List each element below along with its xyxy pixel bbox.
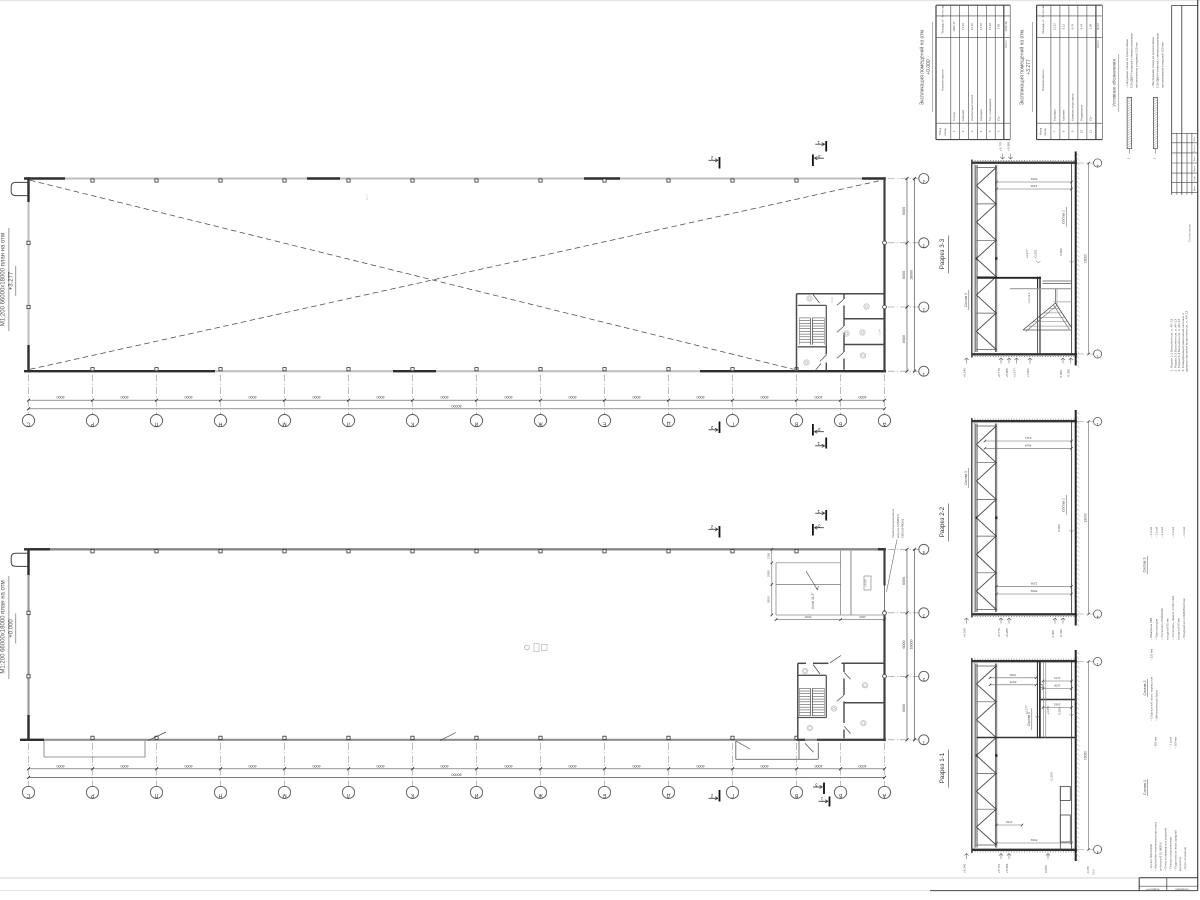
svg-text:4: 4 <box>1097 163 1099 167</box>
svg-text:6000: 6000 <box>633 395 641 399</box>
svg-text:50,3: 50,3 <box>1092 869 1096 875</box>
svg-text:2: 2 <box>961 130 965 132</box>
svg-text:2500х3480(h): 2500х3480(h) <box>901 519 905 538</box>
svg-text:4: 4 <box>1097 614 1099 618</box>
svg-text:6000: 6000 <box>697 395 705 399</box>
svg-text:-0.350: -0.350 <box>1067 369 1071 378</box>
svg-text:Л: Л <box>347 792 350 798</box>
svg-text:Итого: Итого <box>1004 40 1008 48</box>
svg-text:Разрез 2-2: Разрез 2-2 <box>939 506 946 537</box>
svg-text:– Топпинг REFLOOR: – Топпинг REFLOOR <box>1149 844 1153 871</box>
svg-text:6000: 6000 <box>57 764 65 768</box>
svg-text:+3.051: +3.051 <box>1046 705 1050 715</box>
svg-text:ворота АЛЮТЕХ: ворота АЛЮТЕХ <box>896 514 900 538</box>
svg-text:2298: 2298 <box>1030 581 1037 585</box>
svg-text:Состав 3: Состав 3 <box>964 293 968 307</box>
svg-text:2000: 2000 <box>767 570 771 577</box>
svg-text:Сл-3: Сл-3 <box>830 297 834 303</box>
svg-text:Итого: Итого <box>1096 40 1100 48</box>
svg-text:6000: 6000 <box>185 764 193 768</box>
svg-text:6000: 6000 <box>441 395 449 399</box>
svg-text:1: 1 <box>1097 662 1099 666</box>
svg-text:Состав 3: Состав 3 <box>1142 558 1146 573</box>
svg-text:+9.340: +9.340 <box>962 368 966 378</box>
svg-text:– 200 мм: – 200 мм <box>1173 737 1177 749</box>
svg-text:– 1 слой: – 1 слой <box>1171 527 1175 538</box>
svg-text:6000: 6000 <box>57 395 65 399</box>
svg-text:1: 1 <box>952 130 956 132</box>
svg-text:Лист: Лист <box>1194 157 1196 162</box>
svg-text:Дата: Дата <box>1194 185 1196 191</box>
svg-text:12,52: 12,52 <box>1052 23 1056 30</box>
svg-text:8,74: 8,74 <box>1070 23 1074 29</box>
svg-text:Лестничная клетка: Лестничная клетка <box>970 94 974 121</box>
svg-text:18000: 18000 <box>909 270 913 280</box>
svg-text:– Наружные стены из трехслойны: – Наружные стены из трехслойных <box>1125 39 1129 88</box>
svg-text:СЭНДВИЧ-панелей с минераловатн: СЭНДВИЧ-панелей с минераловатным <box>1130 33 1134 88</box>
svg-text:Кабинет: Кабинет <box>961 109 965 121</box>
svg-text:+3.277: +3.277 <box>1012 368 1016 378</box>
svg-text:6: 6 <box>997 130 1001 132</box>
svg-text:6575: 6575 <box>1009 680 1016 684</box>
svg-text:12,52: 12,52 <box>979 23 983 30</box>
svg-text:8569: 8569 <box>1030 589 1037 593</box>
svg-text:Экспликация помещений на отм.: Экспликация помещений на отм. <box>919 29 926 106</box>
svg-text:Состав 2: Состав 2 <box>1143 681 1147 696</box>
svg-text:+3.277: +3.277 <box>1025 705 1029 715</box>
svg-text:8,74: 8,74 <box>1079 23 1083 29</box>
svg-text:4000: 4000 <box>859 395 867 399</box>
svg-text:М1:200 66000х18000 план на отм: М1:200 66000х18000 план на отм <box>1 233 7 326</box>
svg-text:+3.277: +3.277 <box>1025 249 1029 259</box>
svg-text:1436,39: 1436,39 <box>1004 21 1008 32</box>
svg-text:Кол-во люд.: Кол-во люд. <box>942 4 944 17</box>
svg-text:+9.340: +9.340 <box>962 628 966 638</box>
svg-text:– Сетка из арматурных стержней: – Сетка из арматурных стержней <box>1164 827 1168 871</box>
svg-text:6000: 6000 <box>185 395 193 399</box>
svg-text:Герметизированные: Герметизированные <box>891 509 895 538</box>
svg-text:1080,14: 1080,14 <box>952 21 956 32</box>
svg-text:40,62: 40,62 <box>1096 23 1100 30</box>
svg-text:6000: 6000 <box>804 615 811 619</box>
svg-text:– Железобетонная монолитная пл: – Железобетонная монолитная плита <box>1154 822 1158 871</box>
svg-text:6000: 6000 <box>902 641 906 649</box>
svg-text:дверных проемов выполнена см.: дверных проемов выполнена см. л. АР-13 <box>1185 311 1189 372</box>
svg-text:+5.770: +5.770 <box>997 863 1001 873</box>
svg-text:6000: 6000 <box>121 764 129 768</box>
svg-text:Состав 1: Состав 1 <box>1143 780 1147 795</box>
svg-text:Кол-во люд.: Кол-во люд. <box>1043 4 1045 17</box>
svg-text:10: 10 <box>1079 129 1083 133</box>
svg-text:0.000: 0.000 <box>1044 865 1048 873</box>
svg-text:М: М <box>282 420 286 426</box>
svg-text:Формат А4: Формат А4 <box>1146 887 1160 891</box>
svg-text:4000: 4000 <box>859 764 867 768</box>
svg-text:18000: 18000 <box>1083 513 1087 522</box>
svg-text:3: 3 <box>815 782 818 787</box>
svg-text:толщиной 50 мм: толщиной 50 мм <box>1165 619 1169 640</box>
svg-text:+5.770: +5.770 <box>997 628 1001 638</box>
svg-text:– 2 слоя: – 2 слоя <box>1168 737 1172 748</box>
svg-text:Л: Л <box>347 420 350 426</box>
svg-text:Коридор: Коридор <box>979 109 983 121</box>
svg-text:Тех. помещение: Тех. помещение <box>988 98 992 121</box>
svg-text:1: 1 <box>820 797 823 802</box>
svg-text:6000: 6000 <box>505 764 513 768</box>
svg-text:6000: 6000 <box>569 764 577 768</box>
svg-text:18000: 18000 <box>1083 254 1087 263</box>
svg-text:– 1 слой: – 1 слой <box>1182 527 1186 538</box>
svg-text:1730: 1730 <box>1006 820 1013 824</box>
svg-text:Площадь, м²: Площадь, м² <box>941 19 944 34</box>
svg-text:4000: 4000 <box>815 395 823 399</box>
svg-text:толщиной 50 мм: толщиной 50 мм <box>1176 619 1180 640</box>
svg-text:Кабинет: Кабинет <box>1061 109 1065 121</box>
svg-text:1: 1 <box>1097 422 1099 426</box>
svg-text:+0.000: +0.000 <box>8 619 14 638</box>
svg-text:П: П <box>154 420 158 426</box>
svg-text:Наименование: Наименование <box>940 69 944 91</box>
svg-text:Состав 3: Состав 3 <box>964 471 968 485</box>
svg-text:– Подоснова из песка (средней: – Подоснова из песка (средней <box>1173 830 1177 871</box>
svg-text:6000: 6000 <box>313 764 321 768</box>
svg-text:8569: 8569 <box>1030 838 1037 842</box>
svg-text:2298: 2298 <box>1030 184 1037 188</box>
svg-text:3: 3 <box>818 427 821 432</box>
svg-text:Согласовано: Согласовано <box>1188 224 1192 242</box>
svg-text:+3.277: +3.277 <box>1026 59 1032 75</box>
svg-text:6000: 6000 <box>249 395 257 399</box>
svg-text:7: 7 <box>1052 130 1056 132</box>
svg-text:+1.051: +1.051 <box>1033 249 1037 259</box>
svg-text:+5.985: +5.985 <box>1006 141 1010 151</box>
svg-text:Ж: Ж <box>538 792 543 798</box>
svg-text:-0.350: -0.350 <box>1086 866 1090 874</box>
svg-text:0.000: 0.000 <box>1059 248 1063 256</box>
svg-text:– Профнастил Н 60х845х0,8 мм: – Профнастил Н 60х845х0,8 мм <box>1182 599 1186 640</box>
svg-text:Подп: Подп <box>1194 175 1196 181</box>
svg-text:0.000: 0.000 <box>1057 524 1061 532</box>
svg-text:1,58: 1,58 <box>997 23 1001 29</box>
svg-text:6000: 6000 <box>902 704 906 712</box>
svg-text:Площадь, м²: Площадь, м² <box>1042 19 1045 34</box>
svg-text:Ж: Ж <box>538 420 543 426</box>
svg-text:М1:200 66000х18000 план на отм: М1:200 66000х18000 план на отм <box>1 580 7 673</box>
svg-text:6000: 6000 <box>902 271 906 279</box>
svg-text:Г: Г <box>731 792 734 798</box>
svg-text:Н: Н <box>218 792 222 798</box>
svg-text:Условные обозначения: Условные обозначения <box>1112 59 1117 107</box>
svg-text:4: 4 <box>1097 850 1099 854</box>
svg-text:+9.340: +9.340 <box>962 863 966 873</box>
svg-text:6000: 6000 <box>697 764 705 768</box>
svg-text:6000: 6000 <box>902 335 906 343</box>
svg-text:2850: 2850 <box>767 596 771 603</box>
svg-text:– 220 мм: – 220 мм <box>1150 649 1154 661</box>
svg-text:13,49: 13,49 <box>988 23 992 30</box>
svg-text:+5.985: +5.985 <box>1005 628 1009 638</box>
svg-text:– Металлическая балка: – Металлическая балка <box>1154 690 1158 721</box>
svg-text:6000: 6000 <box>377 764 385 768</box>
svg-text:+5.985: +5.985 <box>1005 863 1009 873</box>
svg-text:Состав 1: Состав 1 <box>1062 210 1066 224</box>
svg-text:18000: 18000 <box>909 640 913 650</box>
svg-text:+3.500: +3.500 <box>864 578 868 587</box>
svg-text:– 1 слой: – 1 слой <box>1149 527 1153 538</box>
svg-text:– Утеплитель ЛАЙНРОК,: – Утеплитель ЛАЙНРОК, <box>1160 607 1164 640</box>
svg-text:+1.200: +1.200 <box>1049 772 1053 782</box>
svg-text:8569: 8569 <box>1030 177 1037 181</box>
svg-text:Разрез 3-3: Разрез 3-3 <box>939 238 946 269</box>
svg-text:5: 5 <box>988 130 992 132</box>
svg-text:8: 8 <box>1061 130 1065 132</box>
svg-text:-0.350: -0.350 <box>1059 629 1063 638</box>
svg-text:13,49: 13,49 <box>961 23 965 30</box>
svg-text:СЭНДВИЧ-панелей с минераловатн: СЭНДВИЧ-панелей с минераловатным <box>1156 33 1160 88</box>
svg-text:помещ.: помещ. <box>945 127 947 135</box>
svg-text:1: 1 <box>1097 354 1099 358</box>
svg-text:6000: 6000 <box>902 577 906 585</box>
svg-text:4000: 4000 <box>859 615 866 619</box>
svg-text:наполнителем толщиной 100 мм: наполнителем толщиной 100 мм <box>1161 43 1165 89</box>
svg-text:+5.770: +5.770 <box>997 368 1001 378</box>
svg-text:– Пленка полиэтиленовая: – Пленка полиэтиленовая <box>1168 837 1172 871</box>
svg-text:– Утеплитель, Завеса h=100 кг/: – Утеплитель, Завеса h=100 кг/м3, <box>1171 595 1175 640</box>
svg-text:Состав 2: Состав 2 <box>1027 292 1031 303</box>
svg-text:К: К <box>411 420 414 426</box>
svg-text:4: 4 <box>979 130 983 132</box>
svg-text:2: 2 <box>1126 157 1130 159</box>
svg-text:помещ.: помещ. <box>1045 127 1047 135</box>
svg-text:1150: 1150 <box>767 552 771 559</box>
svg-text:наполнителем толщиной 120 мм: наполнителем толщиной 120 мм <box>1134 43 1138 89</box>
svg-text:Уклон 11,3°: Уклон 11,3° <box>811 592 815 610</box>
svg-text:9,12: 9,12 <box>1061 23 1065 29</box>
svg-text:С: С <box>26 792 30 798</box>
svg-text:– Сборные ж/б плиты перекрытия: – Сборные ж/б плиты перекрытия <box>1150 676 1154 721</box>
svg-text:2: 2 <box>710 525 713 530</box>
svg-text:П: П <box>154 792 158 798</box>
svg-text:6000: 6000 <box>377 395 385 399</box>
svg-text:И: И <box>474 792 478 798</box>
svg-text:Сл-4: Сл-4 <box>878 329 882 335</box>
svg-text:Склад: Склад <box>952 112 956 121</box>
svg-text:6111: 6111 <box>1025 436 1032 440</box>
svg-text:– Грунт основания: – Грунт основания <box>1183 847 1187 871</box>
svg-text:6000: 6000 <box>761 764 769 768</box>
svg-text:+3.277: +3.277 <box>8 271 14 290</box>
svg-text:Экспликация помещений на отм.: Экспликация помещений на отм. <box>1019 29 1026 106</box>
svg-text:6000: 6000 <box>633 764 641 768</box>
svg-text:6000: 6000 <box>902 207 906 215</box>
svg-text:6000: 6000 <box>569 395 577 399</box>
svg-text:Номер: Номер <box>1040 127 1042 135</box>
svg-text:С: С <box>26 420 30 426</box>
svg-text:+5.985: +5.985 <box>1005 368 1009 378</box>
svg-text:6000: 6000 <box>121 395 129 399</box>
svg-text:– Пароизоляция: – Пароизоляция <box>1154 618 1158 640</box>
svg-text:крупности): крупности) <box>1178 857 1182 871</box>
svg-text:0.000: 0.000 <box>1058 707 1062 715</box>
svg-text:Н: Н <box>218 420 222 426</box>
svg-text:2: 2 <box>710 156 713 161</box>
svg-text:4618: 4618 <box>1025 443 1032 447</box>
svg-text:0.000: 0.000 <box>1051 630 1055 638</box>
svg-text:Номер: Номер <box>940 127 942 135</box>
svg-text:С/у: С/у <box>1088 116 1092 121</box>
svg-text:18000: 18000 <box>1083 751 1087 760</box>
svg-text:Разрез 1-1: Разрез 1-1 <box>939 752 946 783</box>
svg-text:Коридор: Коридор <box>1052 109 1056 121</box>
svg-text:6000: 6000 <box>761 395 769 399</box>
svg-text:из бетона В 15 (М200): из бетона В 15 (М200) <box>1159 842 1163 871</box>
svg-text:6000: 6000 <box>505 395 513 399</box>
svg-text:Г: Г <box>731 420 734 426</box>
svg-text:80000: 80000 <box>452 772 462 776</box>
svg-text:+5.770: +5.770 <box>998 141 1002 151</box>
svg-text:Ск-1: Ск-1 <box>365 194 369 200</box>
svg-text:Наименование: Наименование <box>1041 69 1045 91</box>
svg-text:+1.051: +1.051 <box>1026 368 1030 378</box>
svg-text:1,58: 1,58 <box>1088 23 1092 29</box>
svg-text:7560: 7560 <box>1009 673 1016 677</box>
svg-text:Раздевалка: Раздевалка <box>1079 104 1083 121</box>
svg-text:Изм: Изм <box>1194 136 1196 141</box>
svg-text:0.000: 0.000 <box>1059 370 1063 378</box>
svg-text:6000: 6000 <box>313 395 321 399</box>
svg-text:9: 9 <box>1070 130 1074 132</box>
svg-text:Копировал: Копировал <box>1175 887 1188 891</box>
svg-text:– 1 слой: – 1 слой <box>1154 527 1158 538</box>
svg-text:+0.000: +0.000 <box>926 59 932 75</box>
svg-text:Состав 1: Состав 1 <box>1062 498 1066 512</box>
svg-text:11: 11 <box>1088 130 1092 133</box>
svg-text:– 200 мм: – 200 мм <box>1154 737 1158 749</box>
svg-text:М: М <box>282 792 286 798</box>
svg-text:– Мембрана ПВХ: – Мембрана ПВХ <box>1149 618 1153 640</box>
svg-text:К: К <box>411 792 414 798</box>
svg-text:4170: 4170 <box>1054 676 1061 680</box>
svg-text:3: 3 <box>970 130 974 132</box>
svg-text:№док: №док <box>1193 166 1196 172</box>
svg-text:Кол.уч: Кол.уч <box>1194 146 1196 153</box>
svg-text:– Внутренние стены из трехслой: – Внутренние стены из трехслойных <box>1151 37 1155 88</box>
svg-text:И: И <box>474 420 478 426</box>
svg-text:С/у: С/у <box>997 116 1001 121</box>
svg-text:4000: 4000 <box>815 764 823 768</box>
svg-text:1: 1 <box>1152 157 1156 159</box>
svg-text:80000: 80000 <box>452 404 462 408</box>
svg-text:Комната персонала: Комната персонала <box>1070 93 1074 121</box>
svg-text:6000: 6000 <box>441 764 449 768</box>
svg-text:6000: 6000 <box>249 764 257 768</box>
svg-text:1500: 1500 <box>1054 684 1061 688</box>
svg-text:2062: 2062 <box>1054 703 1061 707</box>
svg-text:16,26: 16,26 <box>970 23 974 30</box>
svg-text:– 3 слоя: – 3 слоя <box>1160 527 1164 538</box>
